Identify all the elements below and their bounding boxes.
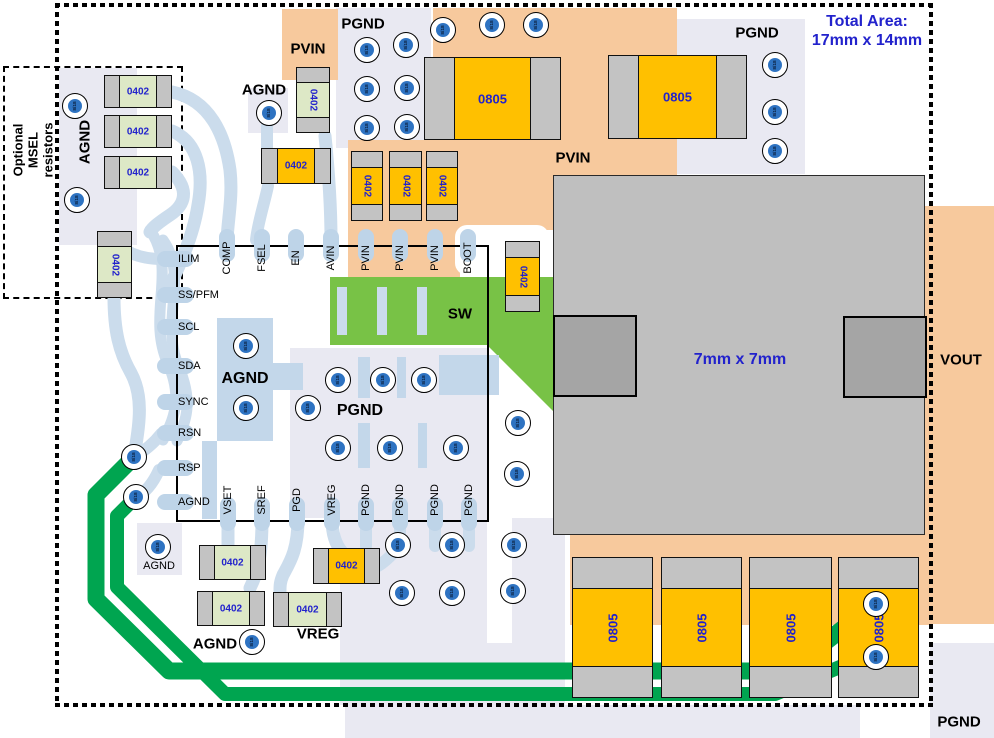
via: 8/18 <box>121 444 147 470</box>
via-size-label: 8/18 <box>450 588 455 597</box>
via-size-label: 8/18 <box>773 146 778 155</box>
component-cap <box>352 204 382 220</box>
ic-pin-pvin: PVIN <box>394 245 406 271</box>
component-0402: 0402 <box>199 545 266 580</box>
component-cap <box>249 592 264 625</box>
via-size-label: 8/18 <box>244 403 249 412</box>
component-0402: 0402 <box>273 592 342 627</box>
via-size-label: 8/18 <box>404 40 409 49</box>
via: 8/18 <box>500 578 526 604</box>
via-size-label: 8/18 <box>365 123 370 132</box>
component-cap <box>506 242 539 258</box>
via: 8/18 <box>123 484 149 510</box>
via: 8/18 <box>145 534 171 560</box>
via-size-label: 8/18 <box>516 418 521 427</box>
component-cap <box>105 116 120 147</box>
component-0805: 0805 <box>838 557 919 698</box>
via: 8/18 <box>325 367 351 393</box>
component-value-label: 0402 <box>285 161 307 172</box>
net-label-agnd-bottom: AGND <box>193 636 237 653</box>
via-size-label: 8/18 <box>441 25 446 34</box>
component-value-label: 0805 <box>871 613 886 642</box>
ic-pin-pvin: PVIN <box>429 245 441 271</box>
via-size-label: 8/18 <box>336 375 341 384</box>
component-value-label: 0805 <box>478 91 507 106</box>
ic-pin-pgd: PGD <box>291 488 303 512</box>
component-value-label: 0402 <box>220 603 242 614</box>
component-cap <box>427 152 457 168</box>
via: 8/18 <box>354 37 380 63</box>
component-cap <box>390 152 421 168</box>
net-label-agnd-top: AGND <box>242 82 286 99</box>
via: 8/18 <box>439 580 465 606</box>
component-cap <box>425 58 455 139</box>
via-size-label: 8/18 <box>490 20 495 29</box>
via: 8/18 <box>394 75 420 101</box>
via-size-label: 8/18 <box>365 84 370 93</box>
net-label-vout: VOUT <box>940 352 982 369</box>
via: 8/18 <box>233 395 259 421</box>
net-label-pgnd-bottomright: PGND <box>937 714 980 731</box>
via-size-label: 8/18 <box>515 469 520 478</box>
via: 8/18 <box>762 52 788 78</box>
via: 8/18 <box>295 395 321 421</box>
via: 8/18 <box>504 461 530 487</box>
via: 8/18 <box>325 435 351 461</box>
component-value-label: 0402 <box>127 167 149 178</box>
ic-pin-pgnd: PGND <box>463 484 475 516</box>
net-label-sw: SW <box>448 306 472 323</box>
component-value-label: 0402 <box>517 265 528 287</box>
via-size-label: 8/18 <box>396 540 401 549</box>
pcb-layout-diagram: 7mm x 7mm COMPFSELENAVINPVINPVINPVINBOOT… <box>0 0 994 738</box>
component-0805: 0805 <box>424 57 561 140</box>
ic-pin-comp: COMP <box>221 242 233 275</box>
via-size-label: 8/18 <box>874 599 879 608</box>
component-value-label: 0402 <box>335 561 357 572</box>
via-size-label: 8/18 <box>75 195 80 204</box>
component-value-label: 0805 <box>663 90 692 105</box>
via: 8/18 <box>863 644 889 670</box>
component-cap <box>364 549 379 583</box>
component-cap <box>262 149 278 183</box>
via: 8/18 <box>501 532 527 558</box>
component-0805: 0805 <box>661 557 742 698</box>
via: 8/18 <box>64 187 90 213</box>
total-area-line1: Total Area: <box>797 12 937 31</box>
via-size-label: 8/18 <box>267 108 272 117</box>
ic-pin-rsn: RSN <box>178 427 201 439</box>
ic-pin-sda: SDA <box>178 360 201 372</box>
via-size-label: 8/18 <box>73 101 78 110</box>
component-value-label: 0805 <box>694 613 709 642</box>
ic-pin-scl: SCL <box>178 321 199 333</box>
component-cap <box>250 546 265 579</box>
component-0402: 0402 <box>104 75 172 108</box>
via-size-label: 8/18 <box>773 107 778 116</box>
via-size-label: 8/18 <box>422 375 427 384</box>
via-size-label: 8/18 <box>132 452 137 461</box>
inductor-pad-left <box>553 315 637 397</box>
component-cap <box>716 56 746 138</box>
component-cap <box>200 546 215 579</box>
component-cap <box>662 666 741 697</box>
component-cap <box>352 152 382 168</box>
net-label-pvin-top: PVIN <box>290 41 325 58</box>
via: 8/18 <box>377 435 403 461</box>
net-label-pgnd-top: PGND <box>341 16 384 33</box>
component-value-label: 0402 <box>296 604 318 615</box>
via-size-label: 8/18 <box>388 443 393 452</box>
component-cap <box>198 592 213 625</box>
via-size-label: 8/18 <box>534 20 539 29</box>
net-label-vreg: VREG <box>297 626 340 643</box>
component-cap <box>662 558 741 589</box>
via-size-label: 8/18 <box>450 540 455 549</box>
via: 8/18 <box>370 367 396 393</box>
via-size-label: 8/18 <box>454 443 459 452</box>
ic-pin-avin: AVIN <box>325 246 337 271</box>
net-label-agnd-via-small: AGND <box>143 560 175 572</box>
ic-pin-en: EN <box>290 250 302 265</box>
ic-pin-rsp: RSP <box>178 462 201 474</box>
component-value-label: 0402 <box>109 253 120 275</box>
via: 8/18 <box>394 114 420 140</box>
via: 8/18 <box>393 32 419 58</box>
via-size-label: 8/18 <box>381 375 386 384</box>
via-size-label: 8/18 <box>405 83 410 92</box>
component-cap <box>105 76 120 107</box>
component-0402: 0402 <box>505 241 540 312</box>
component-cap <box>839 666 918 697</box>
net-label-agnd-ic: AGND <box>221 370 268 388</box>
msel-note-line2: MSEL <box>26 123 41 178</box>
ic-pin-pvin: PVIN <box>360 245 372 271</box>
component-0402: 0402 <box>313 548 380 584</box>
component-cap <box>274 593 289 626</box>
via: 8/18 <box>354 115 380 141</box>
inductor-size-label: 7mm x 7mm <box>694 351 787 369</box>
component-cap <box>98 282 131 297</box>
ic-pin-vset: VSET <box>222 486 234 515</box>
component-value-label: 0402 <box>400 175 411 197</box>
board-outline-bottom <box>55 703 933 707</box>
via: 8/18 <box>479 12 505 38</box>
via-size-label: 8/18 <box>405 122 410 131</box>
inductor-pad-right <box>843 316 927 398</box>
via: 8/18 <box>62 93 88 119</box>
component-cap <box>839 558 918 589</box>
component-0805: 0805 <box>572 557 653 698</box>
component-0402: 0402 <box>426 151 458 221</box>
component-0402: 0402 <box>296 67 330 133</box>
component-value-label: 0402 <box>127 86 149 97</box>
via-size-label: 8/18 <box>250 637 255 646</box>
via: 8/18 <box>411 367 437 393</box>
component-0402: 0402 <box>197 591 265 626</box>
ic-pin-vreg: VREG <box>326 484 338 515</box>
ic-pin-ilim: ILIM <box>178 253 199 265</box>
ic-pin-sref: SREF <box>256 485 268 514</box>
via-size-label: 8/18 <box>336 443 341 452</box>
via: 8/18 <box>762 138 788 164</box>
component-0402: 0402 <box>389 151 422 221</box>
via: 8/18 <box>505 410 531 436</box>
net-label-agnd-left-vert: AGND <box>77 120 94 164</box>
component-cap <box>750 558 831 589</box>
board-outline-right <box>929 3 933 707</box>
component-value-label: 0805 <box>783 613 798 642</box>
via: 8/18 <box>762 99 788 125</box>
via-size-label: 8/18 <box>773 60 778 69</box>
component-cap <box>750 666 831 697</box>
via: 8/18 <box>389 580 415 606</box>
net-label-pgnd-topright: PGND <box>735 25 778 42</box>
via: 8/18 <box>863 591 889 617</box>
component-cap <box>314 549 329 583</box>
component-0805: 0805 <box>749 557 832 698</box>
via-size-label: 8/18 <box>365 45 370 54</box>
component-value-label: 0805 <box>605 613 620 642</box>
total-area-note: Total Area: 17mm x 14mm <box>797 12 937 50</box>
msel-note-line3: resistors <box>41 123 56 178</box>
msel-note-line1: Optional <box>11 123 26 178</box>
component-cap <box>156 116 171 147</box>
net-label-pgnd-ic: PGND <box>337 402 383 420</box>
component-cap <box>156 157 171 188</box>
via: 8/18 <box>233 333 259 359</box>
via-size-label: 8/18 <box>244 341 249 350</box>
component-cap <box>297 117 329 132</box>
component-value-label: 0402 <box>437 175 448 197</box>
ic-pin-pgnd: PGND <box>360 484 372 516</box>
ic-pin-agnd: AGND <box>178 496 210 508</box>
component-cap <box>427 204 457 220</box>
component-0402: 0402 <box>261 148 331 184</box>
via-size-label: 8/18 <box>511 586 516 595</box>
via: 8/18 <box>439 532 465 558</box>
component-value-label: 0402 <box>308 89 319 111</box>
via: 8/18 <box>443 435 469 461</box>
ic-pin-boot: BOOT <box>462 242 474 273</box>
via-size-label: 8/18 <box>400 588 405 597</box>
component-0402: 0402 <box>97 231 132 298</box>
component-cap <box>530 58 560 139</box>
component-cap <box>390 204 421 220</box>
component-cap <box>98 232 131 247</box>
component-cap <box>105 157 120 188</box>
via: 8/18 <box>256 100 282 126</box>
board-outline-top <box>55 3 933 7</box>
via: 8/18 <box>385 532 411 558</box>
component-cap <box>314 149 330 183</box>
via-size-label: 8/18 <box>134 492 139 501</box>
total-area-line2: 17mm x 14mm <box>797 31 937 50</box>
component-value-label: 0402 <box>127 126 149 137</box>
ic-pin-ss-pfm: SS/PFM <box>178 289 219 301</box>
ic-pin-pgnd: PGND <box>429 484 441 516</box>
msel-note: Optional MSEL resistors <box>11 123 56 178</box>
via-size-label: 8/18 <box>306 403 311 412</box>
component-cap <box>506 295 539 311</box>
via-size-label: 8/18 <box>874 652 879 661</box>
component-0805: 0805 <box>608 55 747 139</box>
board-outline-left <box>55 3 59 707</box>
component-value-label: 0402 <box>221 557 243 568</box>
via-size-label: 8/18 <box>156 542 161 551</box>
component-cap <box>297 68 329 83</box>
component-0402: 0402 <box>104 156 172 189</box>
ic-pin-pgnd: PGND <box>394 484 406 516</box>
ic-pin-sync: SYNC <box>178 396 209 408</box>
ic-pin-fsel: FSEL <box>256 244 268 272</box>
component-0402: 0402 <box>351 151 383 221</box>
component-cap <box>573 558 652 589</box>
component-cap <box>156 76 171 107</box>
component-cap <box>609 56 639 138</box>
via: 8/18 <box>239 629 265 655</box>
component-cap <box>326 593 341 626</box>
net-label-pvin-mid: PVIN <box>555 150 590 167</box>
via: 8/18 <box>523 12 549 38</box>
via: 8/18 <box>354 76 380 102</box>
component-0402: 0402 <box>104 115 172 148</box>
via: 8/18 <box>430 17 456 43</box>
component-value-label: 0402 <box>362 175 373 197</box>
via-size-label: 8/18 <box>512 540 517 549</box>
component-cap <box>573 666 652 697</box>
